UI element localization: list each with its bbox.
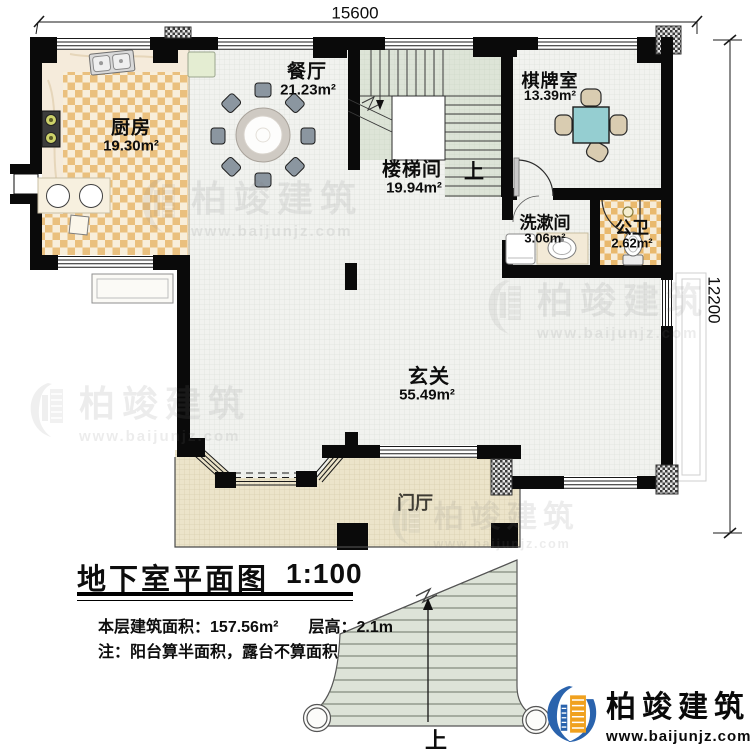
floor-area-value: 157.56m²	[210, 619, 279, 636]
room-label-toilet: 公卫	[615, 220, 649, 237]
exterior-up-label: 上	[425, 730, 447, 752]
room-area-washroom: 3.06m²	[524, 232, 565, 245]
chess-table	[573, 107, 609, 143]
room-label-foyer: 门厅	[397, 494, 433, 512]
room-label-dining: 餐厅	[287, 63, 327, 82]
kitchen-sink	[89, 50, 135, 75]
hall-bottom-window	[378, 445, 478, 458]
stove	[42, 111, 60, 147]
room-label-stairwell: 楼梯间	[382, 161, 442, 180]
light-well	[92, 274, 173, 303]
dining-top-window	[218, 37, 313, 50]
stair-top-window	[385, 37, 473, 50]
terrace-outline	[676, 273, 706, 481]
plan-scale: 1:100	[286, 558, 363, 590]
room-area-kitchen: 19.30m²	[103, 139, 159, 154]
room-label-washroom: 洗漱间	[520, 215, 571, 232]
right-wall-window	[661, 280, 673, 326]
title-underline-thick	[77, 592, 353, 596]
floor-height-value: 2.1m	[357, 619, 393, 636]
room-area-hall: 55.49m²	[399, 388, 455, 403]
room-area-dining: 21.23m²	[280, 83, 336, 98]
logo-company-name: 柏竣建筑	[606, 682, 750, 726]
dimension-right: 12200	[706, 276, 723, 323]
room-area-toilet: 2.62m²	[611, 237, 652, 250]
floor-info-line: 本层建筑面积：157.56m²层高：2.1m	[98, 613, 393, 637]
room-label-kitchen: 厨房	[111, 119, 151, 138]
logo-website: www.baijunjz.com	[606, 728, 750, 745]
floor-area-label: 本层建筑面积：	[98, 619, 210, 636]
dimension-top: 15600	[331, 5, 378, 22]
title-underline-thin	[77, 600, 353, 601]
room-label-hall: 玄关	[408, 367, 450, 387]
floorplan-page: 柏竣建筑 www.baijunjz.com 柏竣建筑 www.baijunjz.…	[0, 0, 750, 755]
company-logo-icon	[543, 684, 599, 744]
company-logo: 柏竣建筑 www.baijunjz.com	[543, 682, 750, 745]
plan-note: 注：阳台算半面积，露台不算面积	[98, 638, 338, 662]
chess-top-window	[538, 37, 637, 50]
room-area-stairwell: 19.94m²	[386, 181, 442, 196]
room-area-chess: 13.39m²	[524, 88, 576, 102]
stair-up-label: 上	[464, 162, 484, 182]
porch-right-window	[564, 476, 640, 489]
kitchen-bottom-window	[58, 255, 153, 268]
fridge	[188, 52, 215, 77]
floor-height-label: 层高：	[309, 619, 357, 636]
kitchen-top-window	[57, 37, 150, 50]
